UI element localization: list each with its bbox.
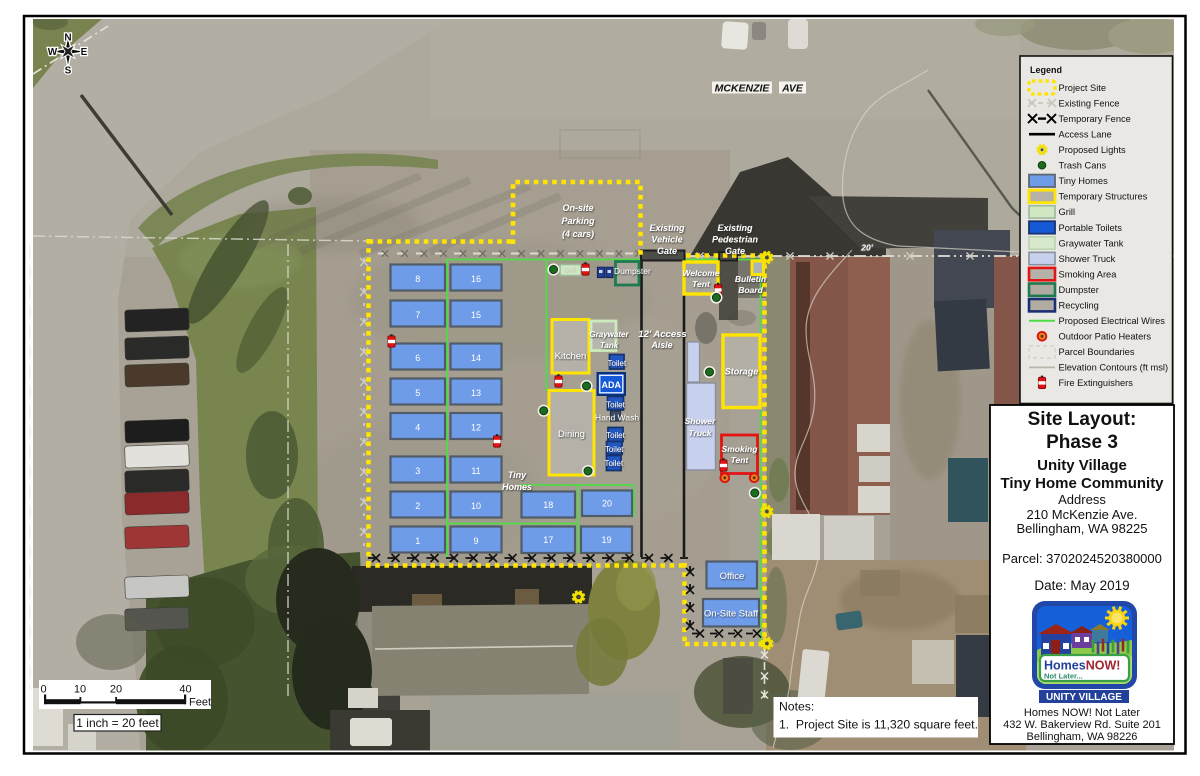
svg-text:Elevation Contours (ft msl): Elevation Contours (ft msl) (1059, 363, 1169, 373)
svg-text:18: 18 (543, 500, 553, 510)
svg-text:8: 8 (415, 274, 420, 284)
svg-text:Fire Extinguishers: Fire Extinguishers (1059, 378, 1134, 388)
svg-text:Homes: Homes (502, 482, 532, 492)
svg-text:1 inch = 20 feet: 1 inch = 20 feet (76, 716, 159, 730)
svg-text:Toilet: Toilet (604, 459, 623, 468)
svg-text:13: 13 (471, 388, 481, 398)
svg-text:Grill: Grill (1059, 207, 1076, 217)
svg-text:Gate: Gate (725, 246, 745, 256)
svg-text:Existing: Existing (649, 223, 685, 233)
svg-text:Aisle: Aisle (650, 340, 672, 350)
svg-text:ADA: ADA (602, 380, 622, 390)
svg-text:Parcel: 3702024520380000: Parcel: 3702024520380000 (1002, 551, 1162, 566)
svg-text:0: 0 (40, 684, 46, 696)
svg-text:Tiny: Tiny (508, 470, 527, 480)
svg-text:Dumpster: Dumpster (614, 266, 651, 276)
svg-text:Truck: Truck (689, 428, 713, 438)
svg-text:Existing Fence: Existing Fence (1059, 98, 1120, 108)
svg-text:Date: May 2019: Date: May 2019 (1034, 578, 1129, 593)
svg-text:MCKENZIE: MCKENZIE (715, 82, 771, 94)
svg-text:Hand Wash: Hand Wash (595, 413, 639, 423)
svg-text:Tent: Tent (731, 455, 750, 465)
svg-text:16: 16 (471, 274, 481, 284)
svg-text:4: 4 (415, 422, 420, 432)
svg-text:15: 15 (471, 310, 481, 320)
svg-text:1. Project Site is 11,320 squ: 1. Project Site is 11,320 square feet. (779, 718, 978, 732)
svg-text:Tiny Homes: Tiny Homes (1059, 176, 1109, 186)
svg-text:Parking: Parking (561, 216, 595, 226)
svg-text:Kitchen: Kitchen (555, 351, 587, 362)
svg-text:S: S (65, 66, 72, 77)
svg-text:Site Layout:: Site Layout: (1028, 409, 1137, 430)
svg-text:Unity Village: Unity Village (1037, 457, 1127, 474)
svg-text:Outdoor Patio Heaters: Outdoor Patio Heaters (1059, 332, 1152, 342)
svg-text:Trash Cans: Trash Cans (1059, 161, 1107, 171)
svg-text:Bulletin: Bulletin (735, 274, 766, 284)
svg-text:HomesNOW!: HomesNOW! (1044, 659, 1120, 673)
svg-text:Graywater: Graywater (589, 330, 629, 339)
svg-text:Vehicle: Vehicle (651, 235, 682, 245)
svg-text:Feet: Feet (189, 697, 211, 709)
svg-text:20: 20 (602, 499, 612, 509)
svg-text:10: 10 (74, 684, 86, 696)
svg-text:Proposed Lights: Proposed Lights (1059, 145, 1127, 155)
svg-text:2: 2 (415, 501, 420, 511)
svg-text:(4 cars): (4 cars) (562, 229, 594, 239)
svg-text:N: N (64, 33, 71, 44)
svg-text:Welcome: Welcome (682, 268, 719, 278)
svg-text:On-site: On-site (562, 203, 593, 213)
svg-text:Bellingham, WA 98226: Bellingham, WA 98226 (1027, 731, 1138, 743)
svg-text:Storage: Storage (725, 367, 759, 377)
svg-text:Toilet: Toilet (606, 431, 625, 440)
svg-text:Recycling: Recycling (1059, 301, 1099, 311)
svg-text:Toilet: Toilet (605, 445, 624, 454)
svg-text:6: 6 (415, 353, 420, 363)
svg-text:7: 7 (415, 310, 420, 320)
svg-text:12' Access: 12' Access (638, 329, 686, 340)
svg-text:Grill: Grill (564, 268, 577, 275)
svg-text:Tent: Tent (692, 279, 711, 289)
svg-text:Gate: Gate (657, 246, 677, 256)
svg-text:Access Lane: Access Lane (1059, 130, 1112, 140)
svg-text:14: 14 (471, 353, 481, 363)
svg-text:W: W (48, 47, 58, 58)
svg-text:1: 1 (415, 536, 420, 546)
svg-text:5: 5 (415, 388, 420, 398)
svg-text:E: E (81, 47, 88, 58)
svg-text:Office: Office (720, 571, 745, 582)
svg-text:Portable Toilets: Portable Toilets (1059, 223, 1123, 233)
svg-text:10: 10 (471, 501, 481, 511)
svg-text:Toilet: Toilet (607, 359, 626, 368)
svg-text:Phase 3: Phase 3 (1046, 432, 1118, 453)
svg-text:9: 9 (473, 536, 478, 546)
svg-text:Graywater Tank: Graywater Tank (1059, 238, 1124, 248)
svg-text:Parcel Boundaries: Parcel Boundaries (1059, 347, 1135, 357)
svg-text:Tank: Tank (600, 341, 619, 350)
svg-text:Temporary Fence: Temporary Fence (1059, 114, 1131, 124)
svg-text:Temporary Structures: Temporary Structures (1059, 192, 1148, 202)
svg-text:Dining: Dining (558, 429, 585, 440)
svg-text:17: 17 (543, 535, 553, 545)
svg-text:Pedestrian: Pedestrian (712, 235, 759, 245)
svg-text:Shower: Shower (685, 416, 716, 426)
svg-text:UNITY VILLAGE: UNITY VILLAGE (1046, 692, 1122, 703)
svg-text:3: 3 (415, 466, 420, 476)
svg-text:19: 19 (601, 535, 611, 545)
svg-text:Shower Truck: Shower Truck (1059, 254, 1116, 264)
svg-text:Not Later...: Not Later... (1044, 672, 1083, 681)
svg-text:Homes NOW! Not Later: Homes NOW! Not Later (1024, 707, 1140, 719)
svg-text:Smoking Area: Smoking Area (1059, 269, 1118, 279)
svg-text:20': 20' (860, 243, 873, 253)
svg-text:Dumpster: Dumpster (1059, 285, 1099, 295)
svg-text:On-Site Staff: On-Site Staff (704, 609, 759, 620)
svg-text:Toilet: Toilet (606, 401, 625, 410)
svg-text:Notes:: Notes: (779, 700, 814, 714)
svg-text:Project Site: Project Site (1059, 83, 1107, 93)
svg-text:Smoking: Smoking (722, 444, 759, 454)
svg-text:Existing: Existing (717, 223, 753, 233)
svg-text:11: 11 (471, 466, 480, 476)
svg-text:Bellingham, WA 98225: Bellingham, WA 98225 (1016, 521, 1147, 536)
svg-text:432 W. Bakerview Rd. Suite 201: 432 W. Bakerview Rd. Suite 201 (1003, 719, 1161, 731)
svg-text:210 McKenzie Ave.: 210 McKenzie Ave. (1026, 507, 1137, 522)
svg-text:20: 20 (110, 684, 122, 696)
svg-text:AVE: AVE (781, 82, 804, 94)
svg-text:Board: Board (738, 285, 763, 295)
svg-text:Tiny Home Community: Tiny Home Community (1000, 475, 1164, 492)
svg-text:Legend: Legend (1030, 65, 1062, 75)
svg-text:Address: Address (1058, 492, 1106, 507)
svg-text:40: 40 (179, 684, 191, 696)
svg-text:12: 12 (471, 422, 481, 432)
svg-text:Proposed Electrical Wires: Proposed Electrical Wires (1059, 316, 1166, 326)
